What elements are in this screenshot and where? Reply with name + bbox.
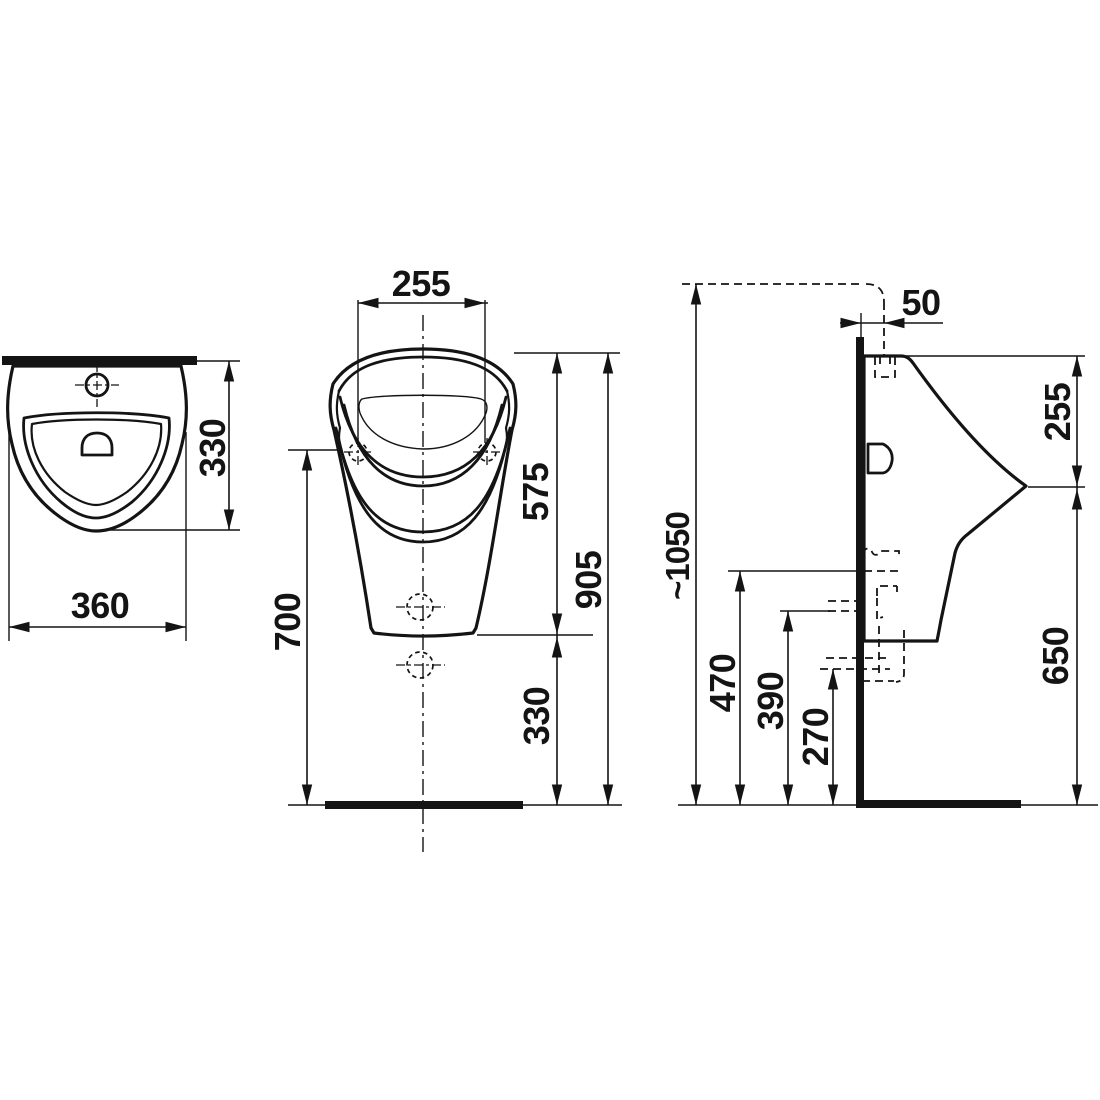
dim-front-fixing-spacing: 255 xyxy=(358,263,488,308)
wall-section-bar xyxy=(2,356,197,365)
floor-drain-crosshair-icon xyxy=(396,652,445,678)
dim-label-top-depth: 330 xyxy=(192,419,233,478)
dim-top-width: 360 xyxy=(9,585,186,632)
dim-label-390: 390 xyxy=(750,672,791,731)
dim-label-rim-to-spout: 255 xyxy=(1037,382,1078,441)
dim-label-fixing-height: 700 xyxy=(267,593,308,652)
dim-label-lip-to-floor: 330 xyxy=(516,687,557,746)
dim-label-top-width: 360 xyxy=(71,585,130,626)
dim-side-390: 390 xyxy=(750,611,793,805)
dim-label-rim-to-floor: 905 xyxy=(568,550,609,609)
floor-bar xyxy=(325,801,523,809)
technical-drawing-page: 330 360 xyxy=(0,0,1100,1100)
wall-section-bar xyxy=(856,337,864,805)
side-view: 50 255 650 ~1050 470 xyxy=(659,282,1098,808)
dim-front-rim-to-floor: 905 xyxy=(568,353,613,805)
floor-bar xyxy=(856,800,1021,808)
dim-side-470: 470 xyxy=(702,571,745,805)
front-view: 255 575 330 905 700 xyxy=(267,263,622,852)
dim-side-rim-to-spout: 255 xyxy=(1037,356,1082,487)
dim-label-spout-to-floor: 650 xyxy=(1035,627,1076,686)
dim-label-rim-to-lip: 575 xyxy=(515,462,556,521)
dim-side-spout-to-floor: 650 xyxy=(1035,487,1082,805)
dim-front-lip-to-floor: 330 xyxy=(516,635,562,805)
dim-label-supply-offset: 50 xyxy=(901,282,940,323)
dim-side-supply-offset: 50 xyxy=(840,282,943,328)
dim-label-470: 470 xyxy=(702,654,743,713)
dim-label-fixing-spacing: 255 xyxy=(392,263,451,304)
urinal-technical-drawing: 330 360 xyxy=(0,0,1100,1100)
body-profile-outline xyxy=(864,356,1026,641)
dim-front-fixing-height: 700 xyxy=(267,450,312,805)
dim-front-rim-to-lip: 575 xyxy=(515,353,562,635)
dim-label-270: 270 xyxy=(795,708,836,767)
top-view: 330 360 xyxy=(2,356,240,641)
dim-side-supply-height: ~1050 xyxy=(659,284,701,805)
dim-side-270: 270 xyxy=(795,669,838,805)
dim-label-supply-height: ~1050 xyxy=(659,512,696,600)
dim-top-depth: 330 xyxy=(192,361,234,530)
